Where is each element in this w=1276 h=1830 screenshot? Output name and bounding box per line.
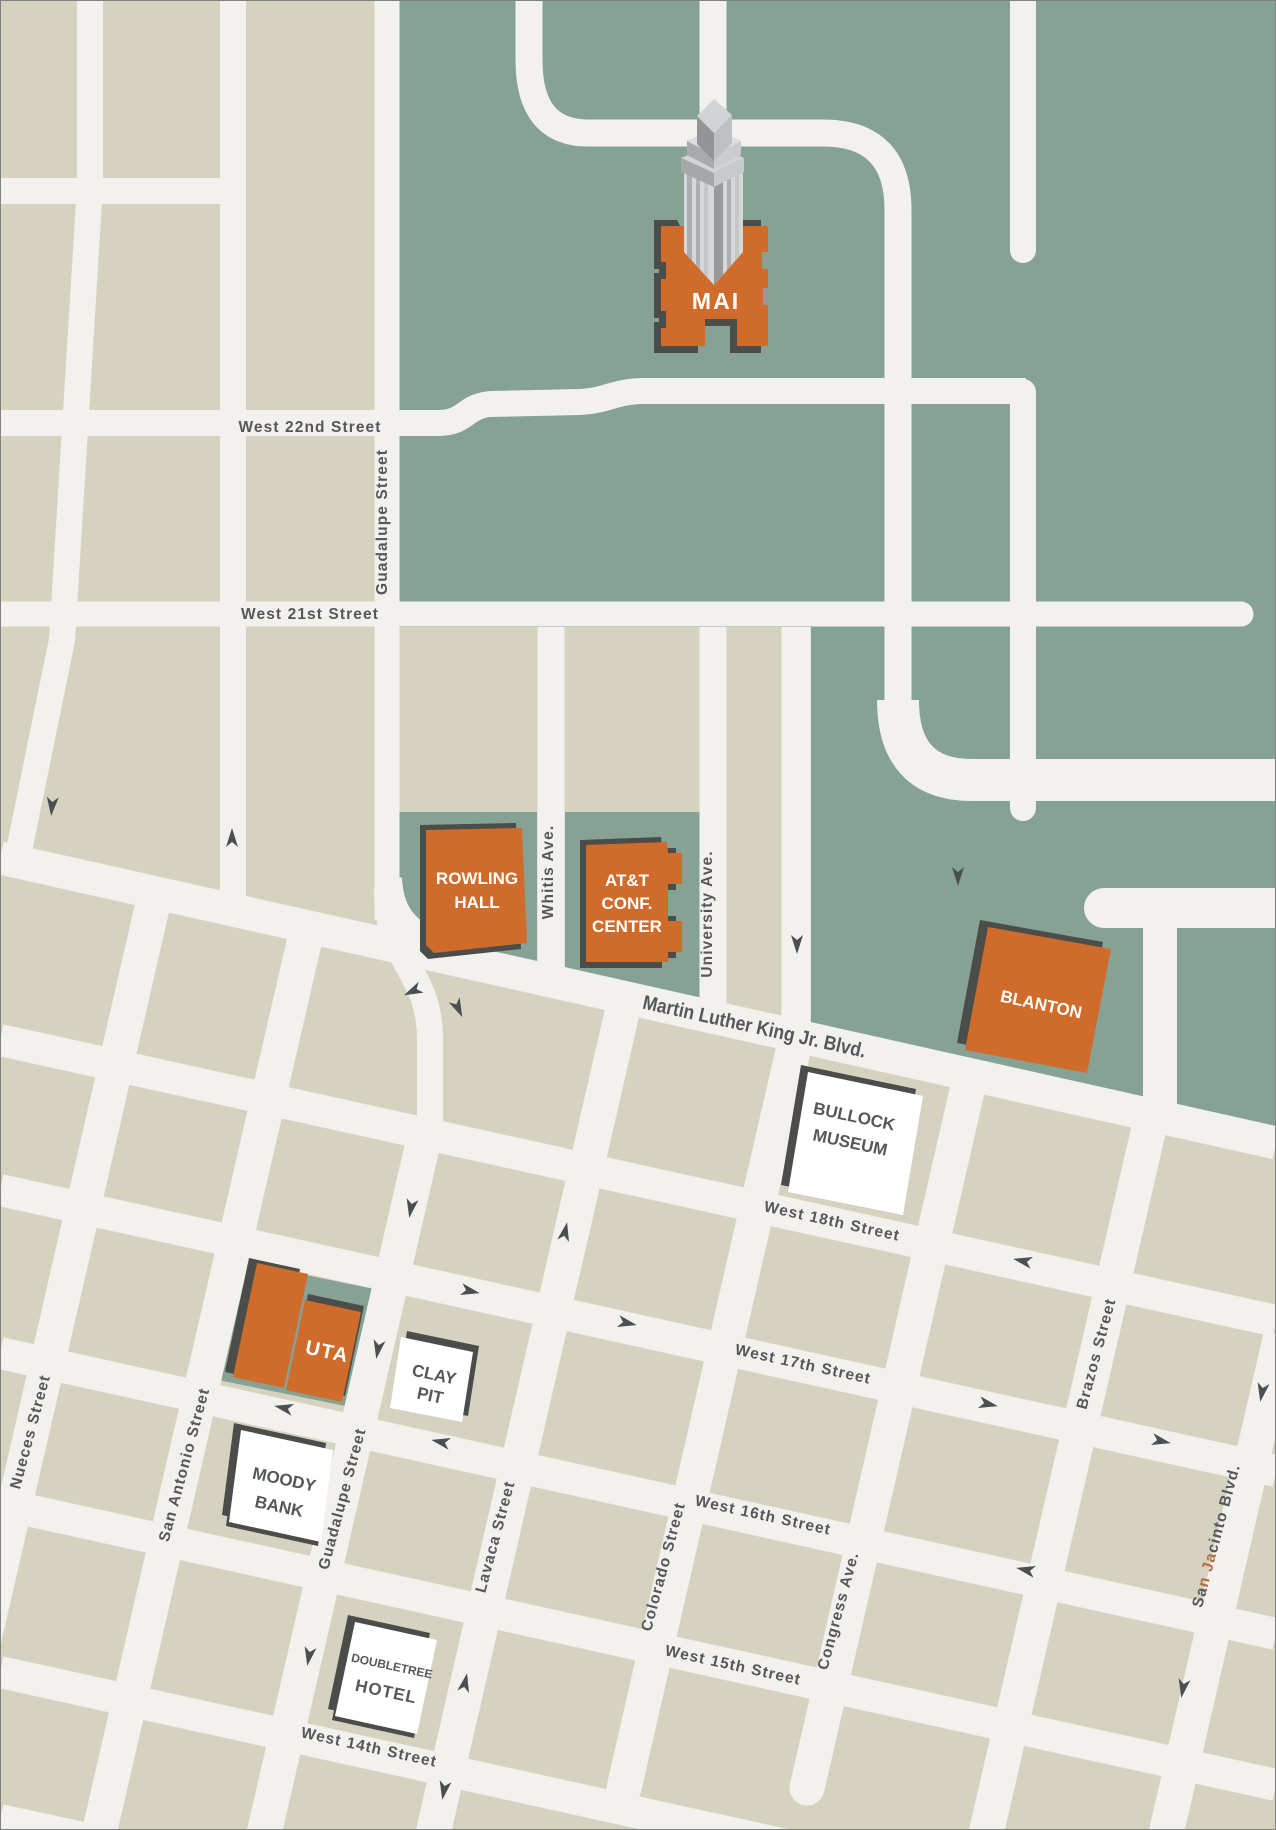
svg-text:CONF.: CONF. <box>602 894 653 913</box>
svg-text:AT&T: AT&T <box>605 871 650 890</box>
svg-text:Whitis Ave.: Whitis Ave. <box>540 825 557 920</box>
svg-text:University Ave.: University Ave. <box>699 850 716 977</box>
svg-text:West 21st Street: West 21st Street <box>241 606 379 623</box>
svg-text:West 22nd Street: West 22nd Street <box>238 419 381 436</box>
svg-text:CENTER: CENTER <box>592 917 662 936</box>
svg-text:MAI: MAI <box>692 288 740 314</box>
svg-text:HALL: HALL <box>454 893 499 912</box>
svg-text:Guadalupe Street: Guadalupe Street <box>374 449 391 595</box>
svg-text:ROWLING: ROWLING <box>436 869 518 888</box>
